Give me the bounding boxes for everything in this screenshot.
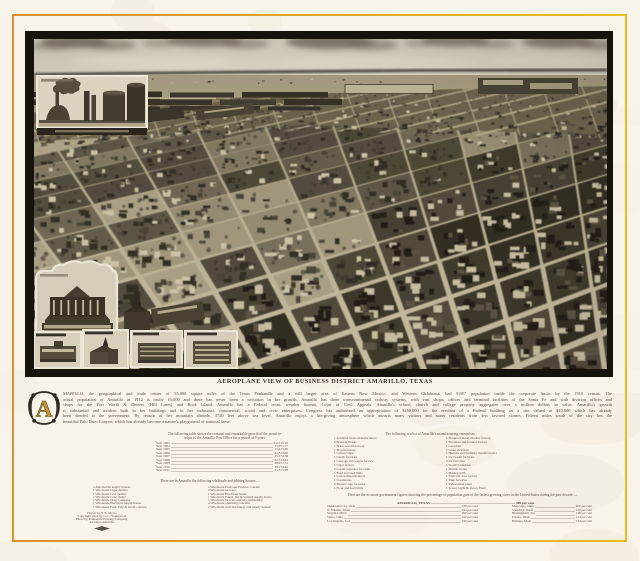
svg-text:A: A bbox=[36, 396, 53, 421]
